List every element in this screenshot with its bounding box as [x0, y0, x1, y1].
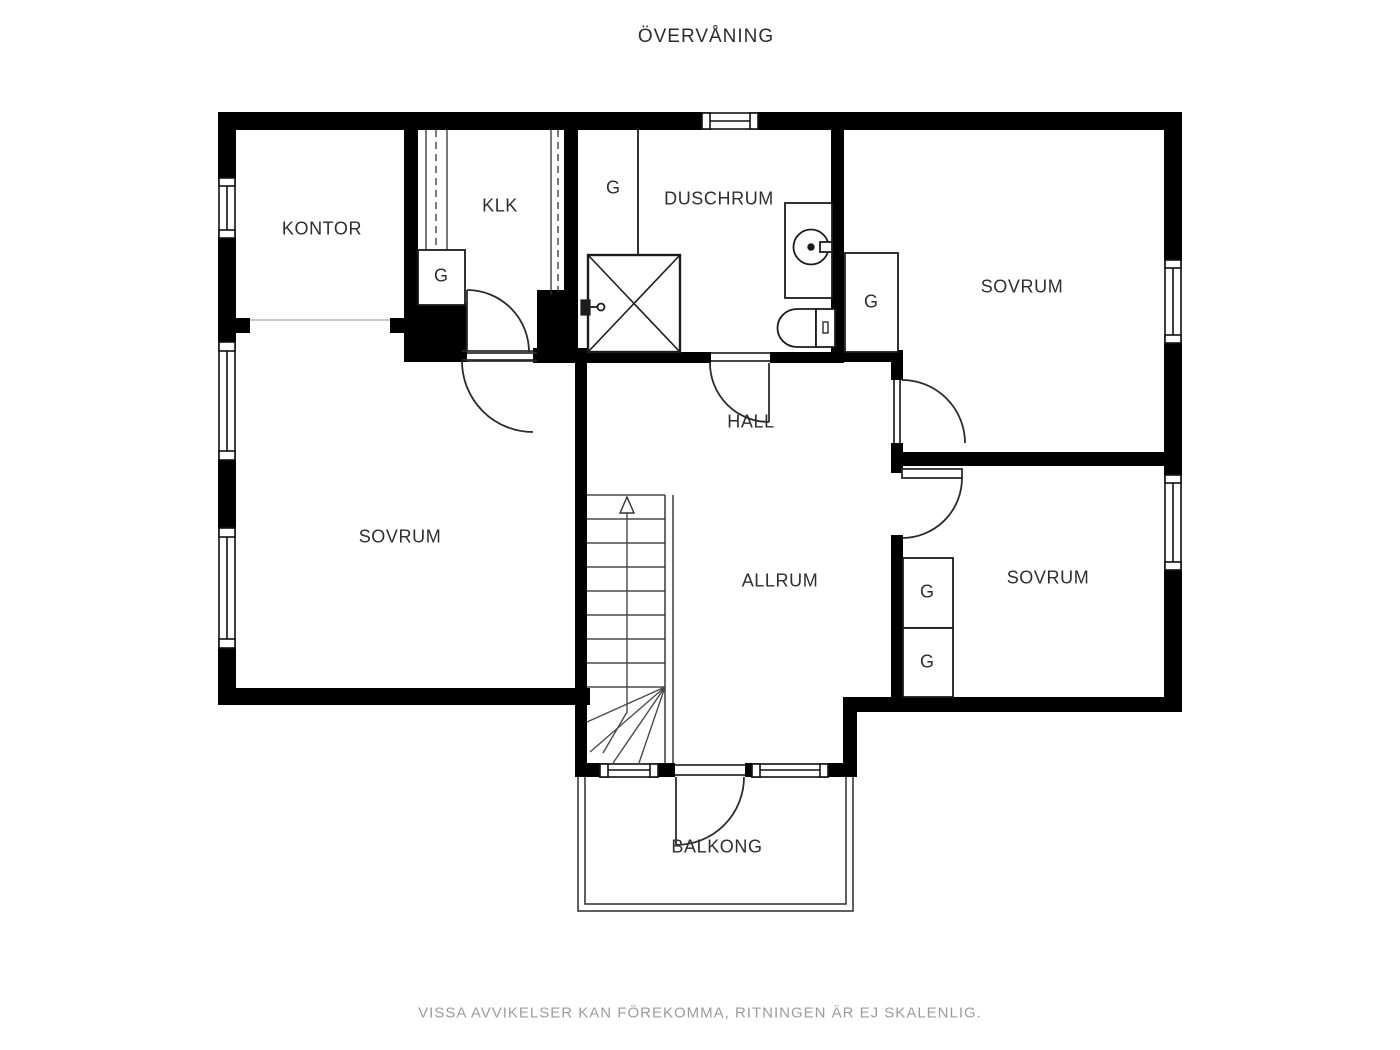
stair-direction-arrow	[603, 497, 634, 753]
door-balkong	[675, 765, 745, 845]
window	[702, 113, 758, 129]
window	[219, 528, 235, 648]
window	[1165, 475, 1181, 570]
room-label-allrum: ALLRUM	[742, 571, 819, 592]
room-label-sovrum-top-right: SOVRUM	[981, 277, 1064, 298]
room-label-kontor: KONTOR	[282, 219, 362, 240]
room-label-klk: KLK	[482, 196, 518, 217]
window	[600, 764, 658, 777]
windows	[219, 113, 1181, 777]
window	[752, 764, 828, 777]
door-sovrum-top-right	[894, 380, 965, 443]
wardrobe-label-klk: G	[434, 266, 448, 287]
stairs	[587, 495, 673, 763]
door-sovrum-bottom-right	[902, 469, 962, 538]
window	[219, 342, 235, 460]
room-label-sovrum-left: SOVRUM	[359, 527, 442, 548]
room-label-balkong: BALKONG	[671, 837, 762, 858]
window	[1165, 260, 1181, 343]
toilet-icon	[778, 309, 836, 347]
wardrobe-label-sovrum-top-right: G	[864, 292, 878, 313]
walls	[218, 112, 1182, 777]
disclaimer-text: VISSA AVVIKELSER KAN FÖREKOMMA, RITNINGE…	[418, 1005, 982, 1022]
wardrobe-label-sovrum-bottom-2: G	[920, 652, 934, 673]
room-label-duschrum: DUSCHRUM	[664, 189, 774, 210]
floor-plan-page: ÖVERVÅNING	[0, 0, 1400, 1050]
shower-icon	[581, 255, 680, 352]
floor-plan-drawing	[0, 0, 1400, 1050]
wardrobe-label-duschrum-left: G	[606, 178, 620, 199]
room-label-sovrum-bottom-right: SOVRUM	[1007, 568, 1090, 589]
door-sovrum-left	[462, 351, 533, 432]
window	[219, 178, 235, 238]
sink-icon	[785, 203, 832, 298]
wardrobe-label-sovrum-bottom-1: G	[920, 582, 934, 603]
doors	[462, 290, 965, 845]
room-label-hall: HALL	[727, 412, 774, 433]
